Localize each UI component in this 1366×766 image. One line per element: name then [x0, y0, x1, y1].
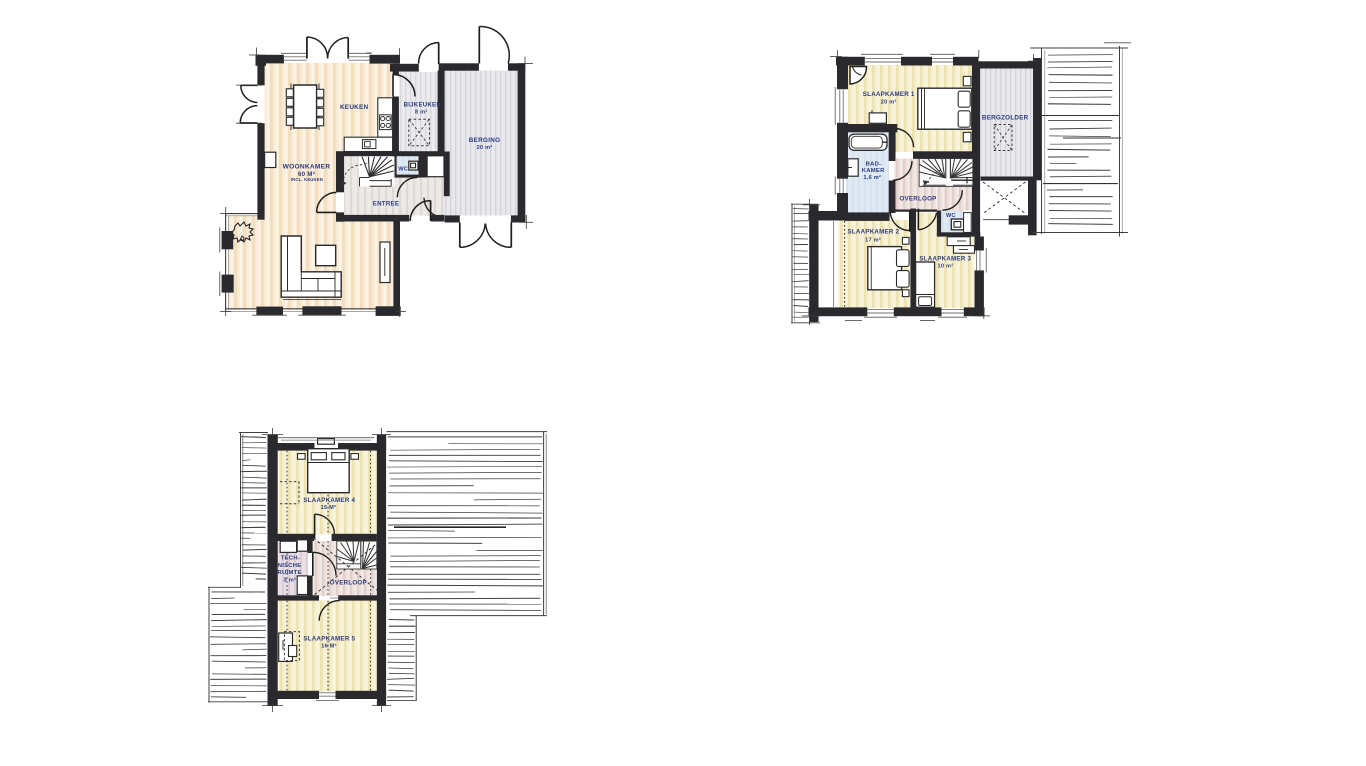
svg-text:SLAAPKAMER 2: SLAAPKAMER 2: [847, 229, 899, 236]
svg-text:OVERLOOP: OVERLOOP: [899, 196, 936, 203]
svg-text:17 m²: 17 m²: [865, 236, 881, 243]
svg-text:WOONKAMER: WOONKAMER: [283, 164, 331, 171]
svg-text:16 M²: 16 M²: [321, 642, 337, 649]
svg-text:SLAAPKAMER 4: SLAAPKAMER 4: [303, 497, 355, 504]
svg-text:SLAAPKAMER 5: SLAAPKAMER 5: [303, 635, 355, 642]
svg-text:BIJKEUKEN: BIJKEUKEN: [404, 101, 441, 108]
svg-text:1,6 m²: 1,6 m²: [863, 174, 881, 181]
svg-text:15 M²: 15 M²: [321, 504, 337, 511]
svg-text:20 m²: 20 m²: [881, 99, 897, 106]
svg-text:INCL. KEUKEN: INCL. KEUKEN: [291, 177, 323, 182]
svg-text:ENTREE: ENTREE: [373, 200, 400, 207]
svg-text:KEUKEN: KEUKEN: [340, 104, 369, 111]
svg-text:WC: WC: [398, 167, 408, 173]
svg-text:8 m²: 8 m²: [415, 109, 428, 116]
svg-text:BAD-: BAD-: [866, 161, 882, 167]
svg-text:3 m²: 3 m²: [284, 576, 297, 583]
svg-text:RUIMTE: RUIMTE: [278, 570, 302, 576]
svg-text:20 m²: 20 m²: [477, 144, 493, 151]
svg-text:TECH-: TECH-: [281, 556, 300, 562]
svg-text:SLAAPKAMER 1: SLAAPKAMER 1: [863, 91, 915, 98]
svg-text:NISCHE: NISCHE: [278, 563, 302, 569]
svg-text:10 m²: 10 m²: [937, 262, 953, 269]
svg-text:WC: WC: [946, 213, 956, 219]
svg-text:OVERLOOP: OVERLOOP: [330, 579, 367, 586]
svg-text:BERGING: BERGING: [469, 137, 501, 144]
svg-text:KAMER: KAMER: [862, 168, 885, 174]
svg-text:BERGZOLDER: BERGZOLDER: [982, 115, 1029, 122]
svg-text:SLAAPKAMER 3: SLAAPKAMER 3: [919, 256, 971, 263]
